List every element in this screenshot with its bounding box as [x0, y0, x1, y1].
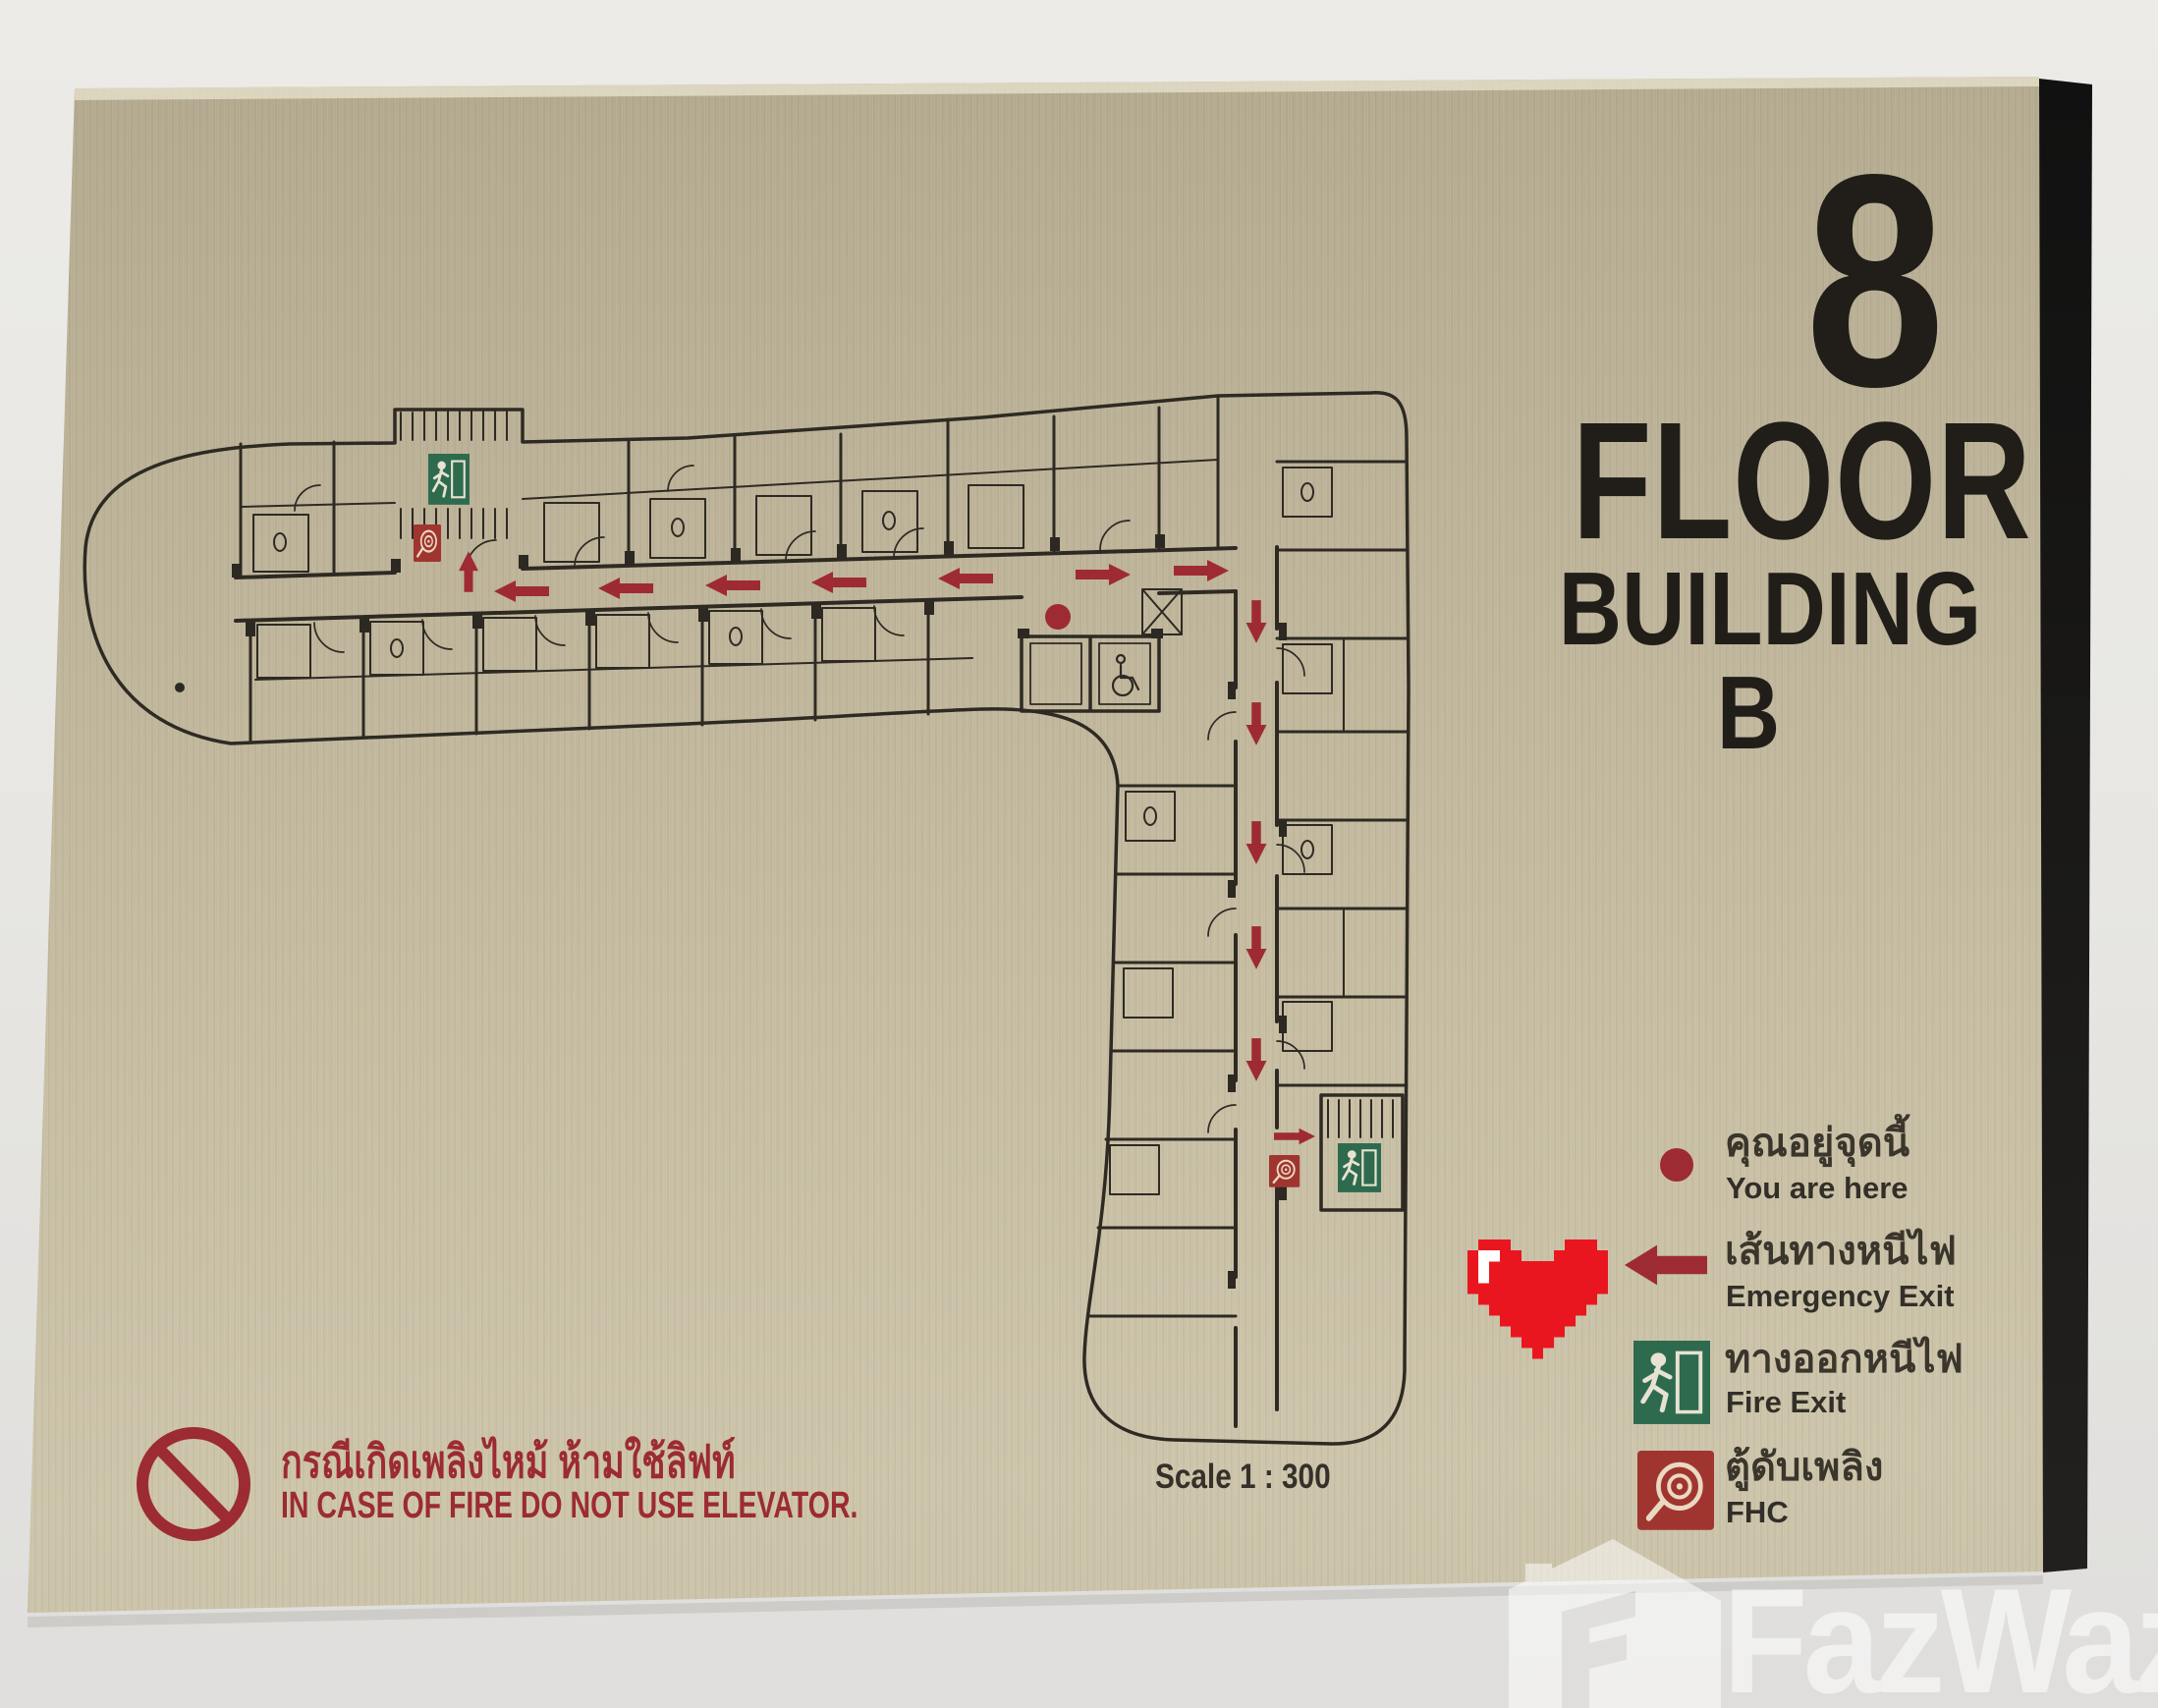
fire-exit-icon — [1338, 1143, 1381, 1192]
no-elevator-icon — [142, 1433, 245, 1535]
route-arrow-right — [1274, 1129, 1315, 1145]
door-jambs — [175, 534, 1287, 1289]
route-arrow-down — [1246, 926, 1267, 969]
fazwaz-watermark: FazWaz — [1723, 1556, 2158, 1708]
legend-emergency-exit-thai: เส้นทางหนีไฟ — [1725, 1228, 1957, 1275]
route-arrow-down — [1246, 821, 1267, 864]
route-arrow-up — [459, 551, 478, 591]
legend-fire-exit-english: Fire Exit — [1726, 1385, 1846, 1420]
fhc-icon — [414, 524, 441, 562]
emergency-exit-arrow-icon — [1625, 1245, 1707, 1286]
scale-label: Scale 1 : 300 — [1155, 1458, 1331, 1497]
route-arrow-left — [598, 578, 653, 599]
legend-fhc-english: FHC — [1726, 1495, 1789, 1530]
route-arrow-left — [938, 568, 993, 589]
floor-number: 8 — [1668, 130, 1945, 432]
route-arrow-left — [811, 572, 866, 593]
route-arrow-left — [705, 575, 760, 596]
fhc-icon — [1269, 1155, 1300, 1187]
heart-sticker — [1467, 1240, 1608, 1359]
route-arrow-down — [1246, 702, 1267, 745]
fazwaz-house-icon — [1509, 1539, 1721, 1708]
route-arrow-down — [1246, 1038, 1267, 1081]
floor-label: FLOOR — [1573, 398, 1925, 565]
route-arrow-right — [1174, 560, 1229, 581]
building-label: BUILDING B — [1559, 557, 1938, 765]
evacuation-sign-photo: 8 FLOOR BUILDING B คุณอยู่จุดนี้ You are… — [0, 0, 2158, 1708]
route-arrow-right — [1076, 564, 1131, 585]
you-are-here-dot-icon — [1660, 1148, 1693, 1182]
legend-you-are-here-thai: คุณอยู่จุดนี้ — [1725, 1120, 1909, 1167]
fire-exit-icon — [428, 454, 470, 505]
you-are-here-dot — [1045, 604, 1071, 630]
route-arrow-down — [1246, 600, 1267, 643]
fire-warning-english: IN CASE OF FIRE DO NOT USE ELEVATOR. — [281, 1485, 858, 1527]
legend-emergency-exit-english: Emergency Exit — [1726, 1279, 1955, 1314]
fire-exit-icon — [1633, 1341, 1710, 1424]
fhc-icon — [1637, 1451, 1714, 1530]
legend-fhc-thai: ตู้ดับเพลิง — [1725, 1444, 1883, 1491]
legend-you-are-here-english: You are here — [1726, 1171, 1909, 1206]
route-arrow-left — [494, 580, 549, 602]
legend-fire-exit-thai: ทางออกหนีไฟ — [1725, 1336, 1964, 1383]
